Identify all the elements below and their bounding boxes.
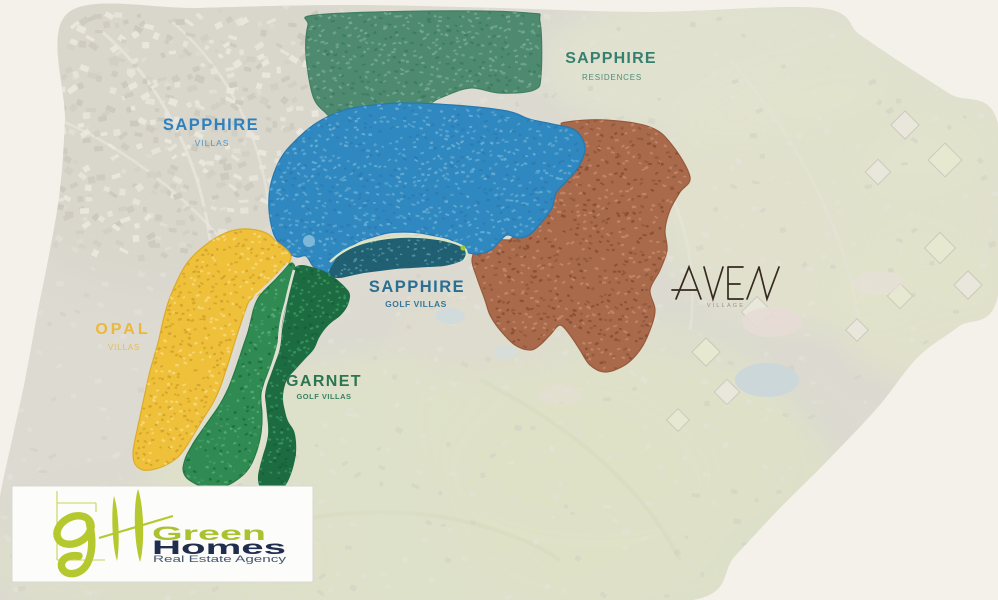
svg-text:GOLF VILLAS: GOLF VILLAS — [296, 392, 351, 401]
svg-text:RESIDENCES: RESIDENCES — [582, 73, 642, 82]
svg-text:GARNET: GARNET — [286, 373, 362, 390]
svg-text:VILLAS: VILLAS — [195, 138, 230, 148]
svg-text:SAPPHIRE: SAPPHIRE — [565, 50, 656, 67]
svg-text:OPAL: OPAL — [95, 321, 150, 338]
svg-text:SAPPHIRE: SAPPHIRE — [369, 278, 465, 296]
svg-text:SAPPHIRE: SAPPHIRE — [163, 116, 259, 134]
svg-text:Real Estate Agency: Real Estate Agency — [153, 554, 286, 565]
svg-text:VILLAS: VILLAS — [108, 343, 140, 352]
svg-text:VILLAGE: VILLAGE — [707, 303, 745, 309]
svg-text:GOLF VILLAS: GOLF VILLAS — [385, 299, 447, 309]
